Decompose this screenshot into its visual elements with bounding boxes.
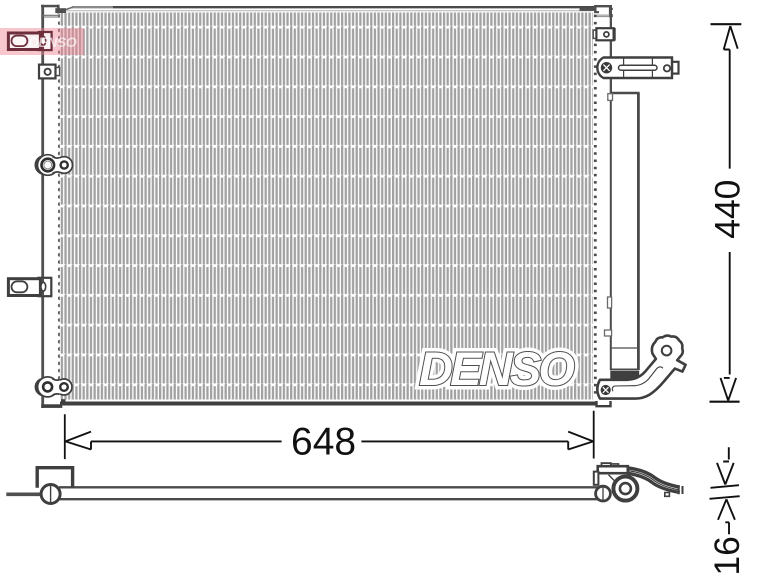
svg-text:16: 16 bbox=[707, 536, 747, 576]
svg-text:648: 648 bbox=[291, 421, 356, 464]
svg-text:DENSO: DENSO bbox=[29, 34, 77, 50]
svg-text:440: 440 bbox=[708, 180, 748, 239]
svg-text:DENSO: DENSO bbox=[419, 342, 574, 395]
